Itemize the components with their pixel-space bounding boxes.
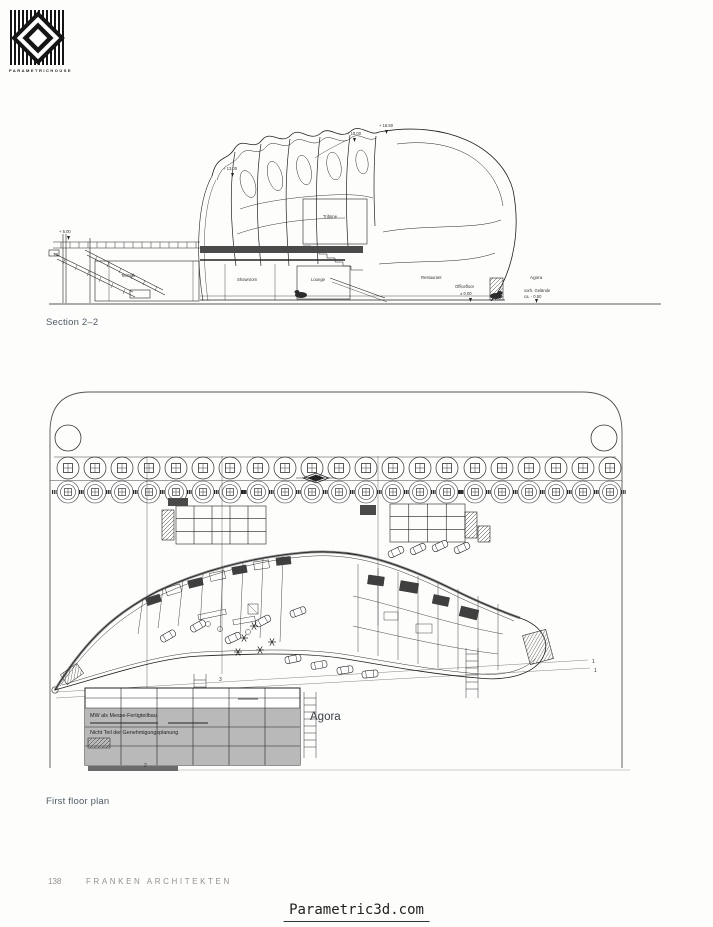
first-floor-plan-drawing: MW als Messe-Fertigteilbau Nicht Teil de… (48, 386, 630, 784)
section-caption: Section 2–2 (46, 317, 98, 328)
plan-caption: First floor plan (46, 796, 109, 807)
right-arm-rooms (353, 564, 553, 672)
label-officefloor: Officefloor (455, 284, 475, 289)
cut-marker-1a: 1 (592, 659, 595, 665)
note-line1: MW als Messe-Fertigteilbau (90, 713, 157, 719)
label-showroom: Showroom (237, 277, 258, 282)
label-agora-plan: Agora (310, 711, 341, 723)
elev-top-mid: + 18.00 (347, 131, 362, 136)
label-technik: Technik (121, 273, 136, 278)
service-block-right (360, 504, 490, 542)
cut-marker-3: 3 (219, 677, 222, 683)
watermark-link[interactable]: Parametric3d.com (283, 902, 430, 922)
parametrichouse-logo-icon (10, 10, 65, 65)
label-restaurant: Restaurant (421, 275, 442, 280)
elev-dome: + 13.00 (223, 166, 238, 171)
note-block: MW als Messe-Fertigteilbau Nicht Teil de… (85, 688, 300, 771)
architect-name: FRANKEN ARCHITEKTEN (86, 877, 232, 886)
note-line3: Nicht Teil der Genehmigungsplanung (90, 730, 178, 736)
cut-marker-2: 2 (144, 763, 147, 769)
column-row-a (57, 457, 621, 479)
elev-ground-right: ± 0.00 (460, 291, 472, 296)
elev-walkway: + 5.00 (59, 229, 71, 234)
label-tribuene: Tribüne (323, 214, 338, 219)
book-page: PARAMETRICHOUSE (0, 0, 713, 927)
label-lounge: Lounge (311, 277, 326, 282)
label-agora-section: Agora (530, 275, 543, 280)
label-t2: T2 (53, 252, 59, 257)
elev-agora-2: ca. - 0.50 (524, 294, 542, 299)
elev-top-right: + 18.50 (379, 123, 394, 128)
service-block-left (162, 498, 266, 544)
cut-marker-1b: 1 (594, 668, 597, 674)
cars (159, 539, 470, 678)
section-drawing: + 18.50 + 18.00 + 13.00 + 5.00 T2 Techni… (45, 114, 667, 320)
building-outline (55, 552, 546, 690)
brand-text: PARAMETRICHOUSE (9, 68, 69, 73)
elev-agora-1: vorh. Gelände (524, 288, 551, 293)
page-number: 138 (48, 877, 61, 886)
column-row-b (52, 481, 626, 503)
